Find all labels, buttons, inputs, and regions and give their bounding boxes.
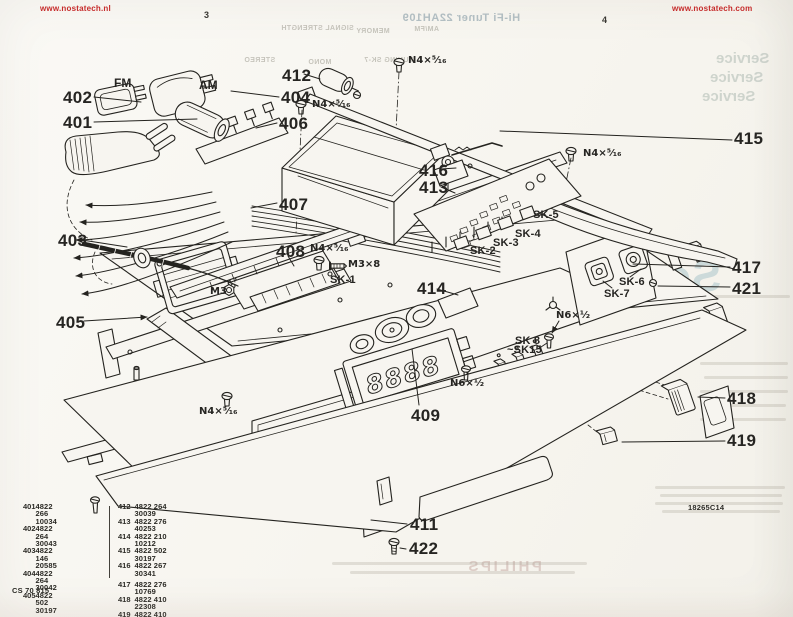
label-n4-top: N4×⁵⁄₁₆ <box>408 56 447 66</box>
label-sk6: SK-6 <box>619 277 645 288</box>
label-401: 401 <box>63 114 92 131</box>
label-sk2: SK-2 <box>470 246 496 257</box>
bolt-icon-m3x8 <box>330 263 347 270</box>
parts-row-401: 4014822 266 10034 <box>23 503 59 525</box>
label-422: 422 <box>409 540 438 557</box>
scanned-service-manual-page: Hi-Fi Tuner 22AH109 Service Service Serv… <box>0 0 793 617</box>
part-ref: 414 <box>118 533 135 548</box>
label-413: 413 <box>419 179 448 196</box>
parts-row-412: 4124822 264 30039 <box>118 503 167 518</box>
watermark-left: www.nostatech.nl <box>40 4 111 13</box>
label-fm: FM <box>114 77 131 89</box>
page-number-right: 4 <box>602 15 607 25</box>
part-number: 4822 276 40253 <box>135 518 168 533</box>
label-419: 419 <box>727 432 756 449</box>
label-sk7: SK-7 <box>604 289 630 300</box>
parts-row-413: 4134822 276 40253 <box>118 518 167 533</box>
label-414: 414 <box>417 280 446 297</box>
label-405: 405 <box>56 314 85 331</box>
drawing-number: 18265C14 <box>688 503 724 512</box>
label-n4-low: N4×⁵⁄₁₆ <box>199 407 238 417</box>
parts-row-415: 4154822 502 30197 <box>118 547 167 562</box>
label-sk5: SK-5 <box>533 210 559 221</box>
screw-icon <box>545 334 554 348</box>
parts-table-divider <box>109 506 110 578</box>
clip-419 <box>596 426 617 445</box>
label-402: 402 <box>63 89 92 106</box>
parts-row-403: 4034822 146 20585 <box>23 547 59 569</box>
screw-icon <box>394 58 404 72</box>
part-ref: 401 <box>23 503 36 525</box>
label-n4-408: N4×⁵⁄₁₆ <box>310 244 349 254</box>
part-ref: 403 <box>23 547 36 569</box>
label-n6-low: N6×¹⁄₂ <box>450 379 484 389</box>
screw-icon-422 <box>389 538 399 554</box>
label-409: 409 <box>411 407 440 424</box>
label-sk15: ~SK15 <box>507 345 542 356</box>
scan-edge-shading <box>753 0 793 617</box>
parts-row-402: 4024822 264 30043 <box>23 525 59 547</box>
part-number: 4822 264 30039 <box>135 503 168 518</box>
label-403: 403 <box>58 232 87 249</box>
part-number: 4822 146 20585 <box>36 547 60 569</box>
parts-row-414: 4144822 210 10212 <box>118 533 167 548</box>
page-number-left: 3 <box>204 10 209 20</box>
label-408: 408 <box>276 243 305 260</box>
label-406: 406 <box>279 115 308 132</box>
label-sk3: SK-3 <box>493 238 519 249</box>
part-number: 4822 264 30042 <box>36 570 60 592</box>
label-n4-right: N4×⁵⁄₁₆ <box>583 149 622 159</box>
part-number: 4822 266 10034 <box>36 503 60 525</box>
parts-row-416: 4164822 267 30341 <box>118 562 167 577</box>
label-404: 404 <box>281 89 310 106</box>
part-ref: 404 <box>23 570 36 592</box>
label-sk4: SK-4 <box>515 229 541 240</box>
part-ref: 416 <box>118 562 135 577</box>
part-ref: 413 <box>118 518 135 533</box>
part-number: 4822 502 30197 <box>135 547 168 562</box>
label-n4-406: N4×⁵⁄₁₆ <box>312 100 351 110</box>
scan-bottom-shading <box>0 591 793 617</box>
part-number: 4822 264 30043 <box>36 525 60 547</box>
part-ref: 412 <box>118 503 135 518</box>
power-key-418 <box>661 378 734 438</box>
watermark-right: www.nostatech.com <box>672 4 752 13</box>
label-407: 407 <box>279 196 308 213</box>
label-m3x8: M3×8 <box>348 260 380 270</box>
part-ref: 402 <box>23 525 36 547</box>
part-ref: 415 <box>118 547 135 562</box>
part-number: 4822 267 30341 <box>135 562 168 577</box>
label-411: 411 <box>410 516 438 533</box>
part-number: 4822 210 10212 <box>135 533 168 548</box>
label-m3: M3 <box>210 287 227 297</box>
label-416: 416 <box>419 162 448 179</box>
label-418: 418 <box>727 390 756 407</box>
label-n6-top: N6×¹⁄₂ <box>556 311 590 321</box>
label-412: 412 <box>282 67 311 84</box>
label-sk1: SK-1 <box>330 275 356 286</box>
parts-row-404: 4044822 264 30042 <box>23 570 59 592</box>
label-am: AM <box>199 79 218 91</box>
